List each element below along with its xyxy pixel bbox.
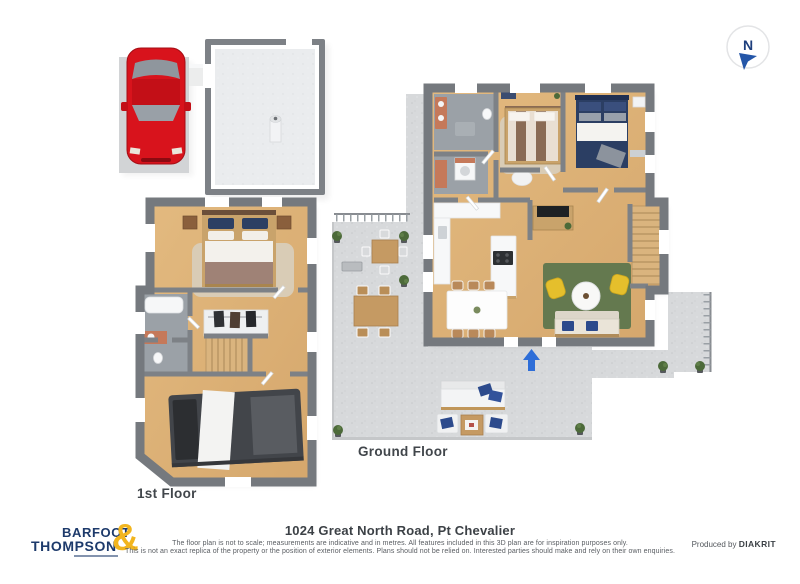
hall-rug bbox=[512, 171, 532, 186]
patio-railing bbox=[334, 214, 410, 218]
red-car bbox=[121, 48, 191, 164]
media-unit bbox=[533, 206, 573, 230]
first-floor-label: 1st Floor bbox=[137, 486, 197, 501]
patio-bench bbox=[342, 262, 362, 271]
north-label: N bbox=[743, 37, 753, 53]
water-heater-cylinder bbox=[270, 116, 281, 143]
staircase bbox=[632, 206, 660, 284]
producer-name: DIAKRIT bbox=[739, 539, 776, 549]
wardrobe bbox=[204, 310, 268, 336]
living-set bbox=[543, 263, 631, 337]
toilet bbox=[483, 109, 492, 120]
car-roof bbox=[132, 79, 180, 105]
outdoor-sofa-set bbox=[437, 381, 508, 435]
car-windshield bbox=[132, 105, 180, 121]
brand-tagline-bar bbox=[74, 555, 118, 557]
disclaimer-line-2: This is not an exact replica of the prop… bbox=[0, 548, 800, 555]
upper-staircase bbox=[206, 338, 248, 372]
cooktop bbox=[493, 251, 513, 265]
produced-by: Produced by DIAKRIT bbox=[692, 539, 776, 549]
floorplan-canvas: N bbox=[0, 0, 800, 584]
property-address: 1024 Great North Road, Pt Chevalier bbox=[0, 523, 800, 538]
ground-floor-plan bbox=[332, 83, 711, 440]
toilet bbox=[154, 353, 163, 364]
garage-room bbox=[203, 36, 329, 200]
bathtub bbox=[145, 297, 183, 313]
garage-unit bbox=[119, 36, 329, 200]
first-floor-plan bbox=[135, 197, 317, 487]
garage-floor bbox=[215, 49, 315, 185]
produced-by-prefix: Produced by bbox=[692, 540, 737, 549]
bedroom-4-furniture bbox=[168, 385, 304, 473]
tv bbox=[537, 206, 569, 217]
right-terrace bbox=[668, 292, 710, 372]
compass: N bbox=[727, 26, 769, 70]
disclaimer-line-1: The floor plan is not to scale; measurem… bbox=[0, 540, 800, 547]
floorplan-page: N Ground Floor 1st Floor BARFOOT THOMPSO… bbox=[0, 0, 800, 584]
ground-floor-label: Ground Floor bbox=[358, 444, 448, 459]
